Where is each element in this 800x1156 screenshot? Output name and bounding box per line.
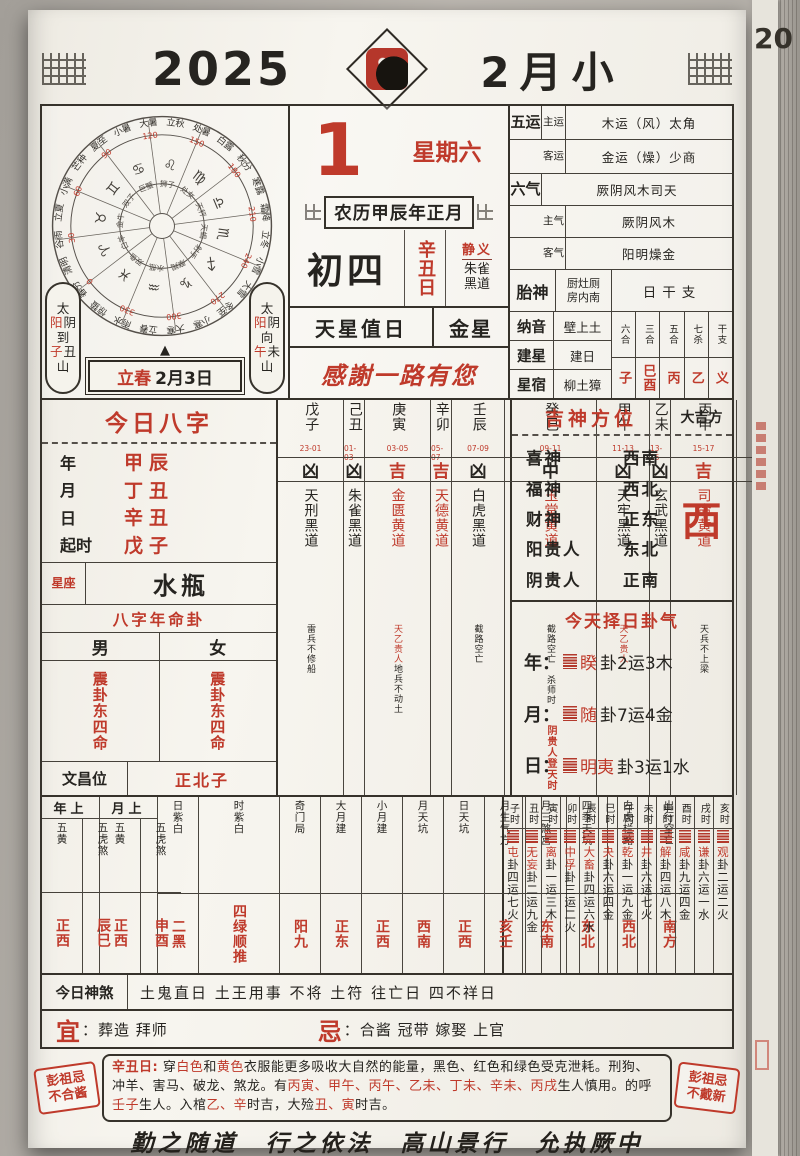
direction-column: 日天坑正西 xyxy=(444,797,485,973)
row-value: 木运（风）太角 xyxy=(566,106,732,139)
xingxiu-label: 星宿 xyxy=(510,370,554,398)
female-label: 女 xyxy=(160,633,277,660)
liuqi-label: 六气 xyxy=(510,174,542,205)
ganzhi-value: 义 xyxy=(709,358,732,398)
hour-hexagram-column: 午时乾卦一运九金 xyxy=(618,797,637,973)
ganzhi-key: 三合 xyxy=(636,312,659,358)
hexagram-of-day: 今天择日卦气 年：睽卦2运3木 月：随卦7运4金 日：明夷卦3运1水 xyxy=(512,602,732,795)
zodiac-symbol: ♈ xyxy=(96,240,116,258)
hour-hexagram-table: 子时屯卦四运七火 丑时无妄卦二运九金 寅时离卦一运三木 卯时中孚卦三运二火 辰时… xyxy=(504,797,732,973)
direction-group: 年上 五黄正西 五虎煞辰巳 xyxy=(42,797,100,973)
zodiac-symbol: ♎ xyxy=(208,194,228,212)
degree-label: 120 xyxy=(142,129,159,141)
male-label: 男 xyxy=(42,633,160,660)
row-value: 金运（燥）少商 xyxy=(566,140,732,173)
capsule-char: 太 xyxy=(261,302,274,316)
hexagram-icon xyxy=(583,830,595,843)
hexagram-icon xyxy=(564,830,576,843)
direction-column: 月天坑西南 xyxy=(403,797,444,973)
zodiac-symbol: ♑ xyxy=(176,272,194,292)
zodiac-name: 金牛 xyxy=(114,212,126,229)
ganzhi-key: 干支 xyxy=(709,312,732,358)
bazi-pillars: 年甲辰 月丁丑 日辛丑 起时戊子 xyxy=(42,444,276,562)
hour-column: 戊子23-01凶天刑黑道雷兵不修船 xyxy=(278,400,343,795)
ganzhi-key: 六合 xyxy=(612,312,635,358)
ji-label: 忌 xyxy=(318,1012,342,1047)
lunar-date: 农历甲辰年正月 xyxy=(324,196,474,229)
yi-ji-row: 宜 ：葬造 拜师 忌 ：合酱 冠带 嫁娶 上官 xyxy=(40,1011,734,1049)
ganzhi-value: 巳酉 xyxy=(636,358,659,398)
page-header: 2025 2月小 xyxy=(42,38,732,100)
ganzhi-title: 日干支 xyxy=(612,270,732,311)
hour-column: 庚寅03-05吉金匮黄道天乙贵人地兵不动土 xyxy=(364,400,430,795)
direction-column: 奇门局阳九 xyxy=(280,797,321,973)
wenchang-label: 文昌位 xyxy=(42,762,128,795)
star-duty-value: 金星 xyxy=(432,308,508,346)
direction-column: 日紫白二黑 xyxy=(158,797,199,973)
hexagram-icon xyxy=(563,758,577,773)
hexagram-icon xyxy=(545,830,557,843)
degree-label: 30 xyxy=(66,232,77,244)
hour-hexagram-column: 亥时观卦二运二火 xyxy=(714,797,732,973)
hexagram-icon xyxy=(563,654,577,669)
next-page-corner: 20 xyxy=(754,22,793,55)
taishen-label: 胎神 xyxy=(510,270,556,311)
star-duty-label: 天星值日 xyxy=(290,308,432,346)
date-column: 1 星期六 农历甲辰年正月 初四 辛丑日 静义 朱雀 黑道 天星值日 金星 xyxy=(290,106,510,398)
weekday-label: 星期六 xyxy=(386,133,508,167)
direction-group: 月上 五黄正西 五虎煞申酉 xyxy=(100,797,158,973)
direction-table: 年上 五黄正西 五虎煞辰巳 月上 五黄正西 五虎煞申酉 日紫白二黑 时紫白四绿顺… xyxy=(42,797,504,973)
jishen-title: 吉神方位 xyxy=(512,400,670,434)
zodiac-symbol: ♌ xyxy=(162,157,177,175)
hour-hexagram-column: 丑时无妄卦二运九金 xyxy=(523,797,542,973)
ji-text: 合酱 冠带 嫁娶 上官 xyxy=(360,1021,505,1039)
ganzhi-key: 五合 xyxy=(660,312,683,358)
zodiac-name: 摩羯 xyxy=(169,258,187,273)
row-key: 主气 xyxy=(542,206,566,237)
zodiac-name: 白羊 xyxy=(115,233,130,251)
hour-band: 今日八字 年甲辰 月丁丑 日辛丑 起时戊子 星座水瓶 八字年命卦 男女 震卦东四… xyxy=(40,400,734,797)
shensha-label: 今日神煞 xyxy=(42,975,128,1009)
next-page-stamp-hint xyxy=(755,1040,769,1070)
mountain-capsule-right: 太 阳阴 向 午未 山 xyxy=(249,282,285,394)
lunar-day: 初四 xyxy=(290,230,404,306)
day-number: 1 xyxy=(290,118,386,183)
almanac-page: 2025 2月小 小暑 大暑 立秋 处暑 白露 秋分 寒露 xyxy=(28,10,746,1148)
mountain-capsule-left: 太 阳阴 到 子丑 山 xyxy=(45,282,81,394)
row-key: 客运 xyxy=(542,140,566,173)
hexagram-icon xyxy=(698,830,710,843)
calligraphy-motto: 勤之随道 行之依法 高山景行 允执厥中 xyxy=(28,1124,746,1156)
male-gua: 震卦东四命 xyxy=(90,671,111,751)
zodiac-symbol: ♍ xyxy=(189,168,209,189)
zodiac-name: 巨蟹 xyxy=(137,179,155,194)
hour-hexagram-column: 子时屯卦四运七火 xyxy=(504,797,523,973)
ganzhi-value: 子 xyxy=(612,358,635,398)
hexagram-icon xyxy=(717,830,729,843)
pengzu-paragraph: 辛丑日: 穿白色和黄色衣服能更多吸收大自然的能量，黑色、红色和绿色受克泄耗。刑狗… xyxy=(102,1054,672,1122)
direction-column: 时紫白四绿顺推 xyxy=(199,797,280,973)
hexagram-icon xyxy=(563,706,577,721)
yi-text: 葬造 拜师 xyxy=(98,1021,168,1039)
direction-column: 小月建正西 xyxy=(362,797,403,973)
hexagram-icon xyxy=(526,830,538,843)
daji-direction: 西 xyxy=(670,436,732,600)
ganzhi-value: 乙 xyxy=(685,358,708,398)
zodiac-symbol: ♏ xyxy=(213,226,231,241)
next-page-sliver xyxy=(752,0,778,1156)
yi-label: 宜 xyxy=(56,1012,80,1047)
pengzu-band: 彭祖忌不合酱 辛丑日: 穿白色和黄色衣服能更多吸收大自然的能量，黑色、红色和绿色… xyxy=(36,1054,738,1122)
zodiac-name: 狮子 xyxy=(159,179,176,190)
pengzu-stamp-right: 彭祖忌不戴新 xyxy=(673,1061,740,1114)
page-stack-lines xyxy=(780,0,798,1156)
ganzhi-table: 六合子 三合巳酉 五合丙 七杀乙 干支义 xyxy=(612,312,732,398)
zodiac-symbol: ♋ xyxy=(130,160,148,180)
banner-term: 立春 xyxy=(117,364,151,389)
wuyun-label: 五运 xyxy=(510,106,542,139)
banner-date: 2月3日 xyxy=(155,364,213,389)
hour-column: 壬辰07-09凶白虎黑道截路空亡 xyxy=(451,400,504,795)
hour-hexagram-column: 寅时离卦一运三木 xyxy=(542,797,561,973)
shensha-text: 土鬼直日 土王用事 不将 土符 往亡日 四不祥日 xyxy=(128,975,732,1009)
bazi-title: 今日八字 xyxy=(42,400,276,444)
hour-hexagram-column: 辰时大畜卦四运六水 xyxy=(580,797,599,973)
liuqi-top: 厥阴风木司天 xyxy=(542,174,732,205)
main-band: 小暑 大暑 立秋 处暑 白露 秋分 寒露 霜降 立冬 小雪 大雪 冬至 小寒 大… xyxy=(40,104,734,400)
hexagram-icon xyxy=(679,830,691,843)
hour-hexagram-column: 卯时中孚卦三运二火 xyxy=(561,797,580,973)
row-key: 客气 xyxy=(542,238,566,269)
guaqi-title: 今天择日卦气 xyxy=(512,602,732,636)
constellation-label: 星座 xyxy=(42,563,86,604)
row-value: 厥阴风木 xyxy=(566,206,732,237)
jianxing-value: 建日 xyxy=(554,341,611,369)
xingxiu-value: 柳土獐 xyxy=(554,370,611,398)
hour-table: 戊子23-01凶天刑黑道雷兵不修船 己丑01-03凶朱雀黑道 庚寅03-05吉金… xyxy=(278,400,512,795)
hour-hexagram-column: 戌时谦卦六运一水 xyxy=(695,797,714,973)
degree-label: 0 xyxy=(84,276,95,286)
five-phases-panel: 五运 主运 木运（风）太角 客运 金运（燥）少商 六气 厥阴风木司天 主气 厥阴… xyxy=(510,106,732,398)
hour-hexagram-column: 巳时夬卦六运四金 xyxy=(599,797,618,973)
month-title: 2月小 xyxy=(416,39,688,100)
auspicious-directions: 吉神方位 大吉方 喜神西南 福神西北 财神正东 阳贵人东北 阴贵人正南 西 xyxy=(512,400,732,602)
book-edge: 20 xyxy=(746,0,800,1156)
direction-column: 大月建正东 xyxy=(321,797,362,973)
almanac-photo: { "colors":{"accent_red":"#bf3a2b","ink"… xyxy=(0,0,800,1156)
zodiac-symbol: ♓ xyxy=(115,264,135,285)
greeting-text: 感謝一路有您 xyxy=(290,348,508,398)
capsule-char: 太 xyxy=(57,302,70,316)
zodiac-name: 天蝎 xyxy=(198,223,210,240)
solar-term-banner: 立春 2月3日 xyxy=(88,360,242,392)
zodiac-symbol: ♐ xyxy=(200,253,221,273)
hexagram-icon xyxy=(641,830,653,843)
meander-ornament xyxy=(477,204,493,220)
constellation-value: 水瓶 xyxy=(86,563,276,604)
direction-band: 年上 五黄正西 五虎煞辰巳 月上 五黄正西 五虎煞申酉 日紫白二黑 时紫白四绿顺… xyxy=(40,797,734,975)
row-key: 主运 xyxy=(542,106,566,139)
zodiac-name: 水瓶 xyxy=(148,262,165,274)
taishen-value: 厨灶厕房内南 xyxy=(556,270,612,311)
hexagram-icon xyxy=(602,830,614,843)
hour-column: 己丑01-03凶朱雀黑道 xyxy=(343,400,364,795)
day-pillar: 辛丑日 xyxy=(412,240,438,297)
hour-column: 辛卯05-07吉天德黄道 xyxy=(430,400,451,795)
hour-hexagram-column: 未时井卦六运七火 xyxy=(638,797,657,973)
meander-ornament xyxy=(305,204,321,220)
solar-term-wheel: 小暑 大暑 立秋 处暑 白露 秋分 寒露 霜降 立冬 小雪 大雪 冬至 小寒 大… xyxy=(42,106,290,398)
row-value: 阳明燥金 xyxy=(566,238,732,269)
degree-label: 60 xyxy=(71,184,84,197)
hexagram-icon xyxy=(622,830,634,843)
year-title: 2025 xyxy=(86,42,358,96)
jianxing-label: 建星 xyxy=(510,341,554,369)
hexagram-icon xyxy=(507,830,519,843)
zodiac-symbol: ♊ xyxy=(104,179,125,199)
zodiac-symbol: ♉ xyxy=(93,211,111,226)
shensha-row: 今日神煞 土鬼直日 土王用事 不将 土符 往亡日 四不祥日 xyxy=(40,975,734,1011)
zodiac-symbol: ♒ xyxy=(147,277,162,295)
degree-label: 210 xyxy=(247,206,259,223)
ganzhi-key: 七杀 xyxy=(685,312,708,358)
pengzu-stamp-left: 彭祖忌不合酱 xyxy=(33,1061,101,1115)
meander-ornament xyxy=(688,53,732,85)
hour-hexagram-column: 酉时咸卦九运四金 xyxy=(676,797,695,973)
daji-label: 大吉方 xyxy=(670,400,732,434)
next-page-red-text-hint xyxy=(756,420,766,490)
nayin-value: 壁上土 xyxy=(554,312,611,340)
bazi-panel: 今日八字 年甲辰 月丁丑 日辛丑 起时戊子 星座水瓶 八字年命卦 男女 震卦东四… xyxy=(42,400,278,795)
logo-emblem-icon xyxy=(366,48,408,90)
duty-officer: 静义 朱雀 黑道 xyxy=(446,230,508,306)
meander-ornament xyxy=(42,53,86,85)
zodiac-name: 天秤 xyxy=(194,201,209,219)
degree-label: 300 xyxy=(166,311,183,323)
nayin-label: 纳音 xyxy=(510,312,554,340)
minggua-title: 八字年命卦 xyxy=(42,604,276,632)
hexagram-icon xyxy=(660,830,672,843)
hour-hexagram-column: 申时解卦四运八木 xyxy=(657,797,676,973)
wenchang-value: 正北子 xyxy=(128,762,276,795)
female-gua: 震卦东四命 xyxy=(207,671,228,751)
ganzhi-value: 丙 xyxy=(660,358,683,398)
